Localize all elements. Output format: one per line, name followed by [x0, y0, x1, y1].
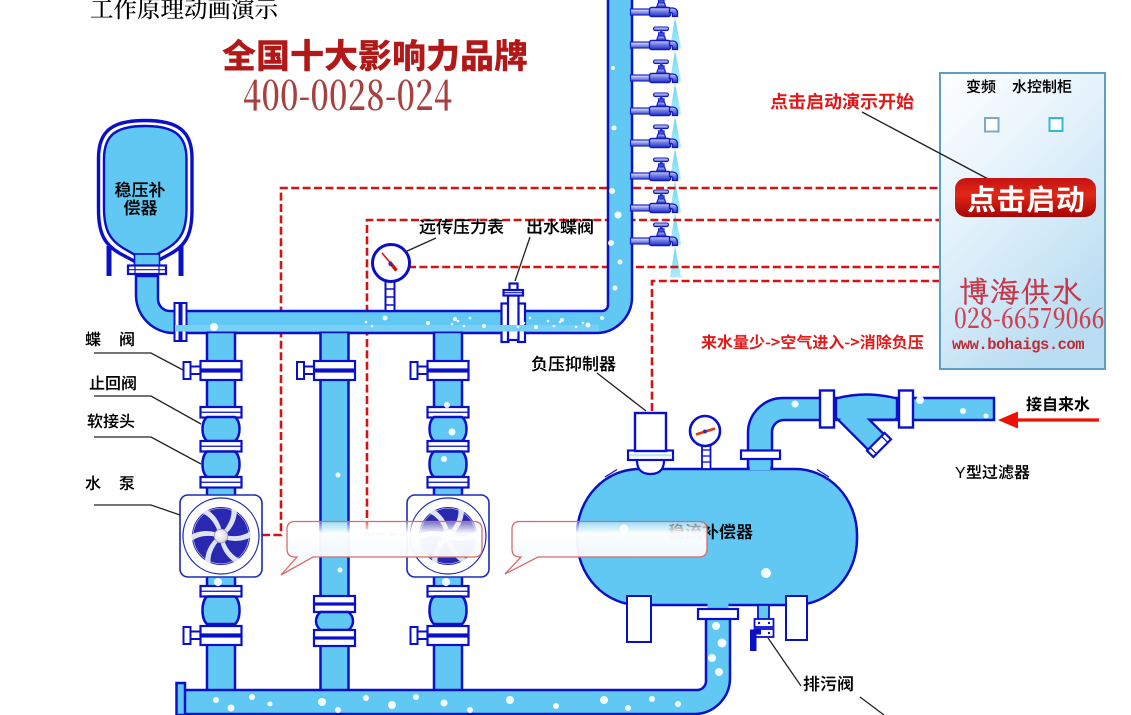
svg-text:www.bohaigs.com: www.bohaigs.com: [952, 336, 1084, 354]
svg-text:Y: Y: [955, 465, 966, 482]
